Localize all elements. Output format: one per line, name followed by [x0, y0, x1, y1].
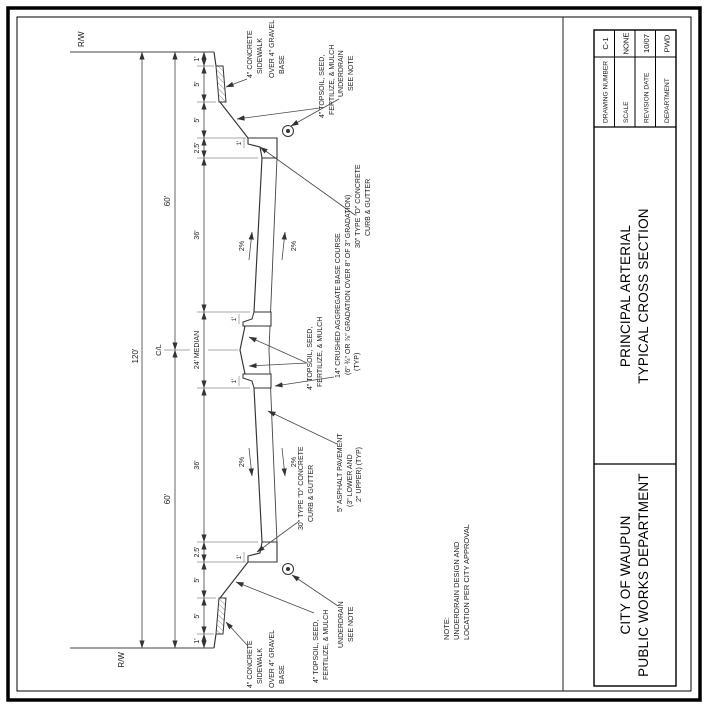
- curb-head-dim: 1': [231, 317, 238, 322]
- annotations: 4" CONCRETE SIDEWALK OVER 4" GRAVEL BASE…: [226, 20, 372, 688]
- sidewalk-note-right-2: SIDEWALK: [257, 38, 264, 74]
- pavement-surface-left: [254, 388, 262, 542]
- slope-text: 2%: [291, 457, 298, 467]
- leader: [236, 582, 314, 613]
- leader: [249, 363, 307, 366]
- dim-chain-4: 36': [194, 460, 201, 469]
- dim-chain-10: 1': [194, 56, 201, 61]
- leader: [237, 108, 320, 119]
- sidewalk-note-right-4: BASE: [279, 55, 286, 74]
- sidewalk-note-left-2: SIDEWALK: [257, 648, 264, 684]
- dim-chain-9: 5': [194, 81, 201, 86]
- underdrain-pipe-left-core: [286, 567, 290, 571]
- pavement-bottom: [269, 158, 277, 542]
- underdrain-note-right-2: SEE NOTE: [348, 55, 355, 91]
- note-line-3: LOCATION PER CITY APPROVAL: [462, 524, 471, 640]
- sidewalk-note-right-3: OVER 4" GRAVEL: [269, 20, 276, 78]
- slope-text: 2%: [291, 241, 298, 251]
- ground-left: [214, 634, 216, 648]
- dimension-lines: R/W R/W 120' 60' 60' C/L 1' 5' 5' 2.5' 3…: [70, 31, 258, 668]
- asphalt-note-3: 2" UPPER) (TYP): [356, 447, 363, 502]
- sidewalk-slab-right: [216, 66, 226, 102]
- title-block-box: [594, 30, 676, 686]
- dim-chain-3: 2.5': [194, 546, 201, 557]
- rw-label-right: R/W: [77, 31, 86, 47]
- dim-chain-7: 2.5': [194, 142, 201, 153]
- sidewalk-note-right-1: 4" CONCRETE: [247, 30, 254, 78]
- leader: [226, 622, 248, 646]
- curb-head-dim: 1': [236, 141, 243, 146]
- leader: [260, 147, 355, 215]
- asphalt-note-2: (3" LOWER AND: [347, 454, 354, 507]
- agency-name-line2: PUBLIC WORKS DEPARTMENT: [636, 473, 651, 677]
- rw-label-left: R/W: [117, 652, 126, 668]
- cross-section-drawing: CITY OF WAUPUN PUBLIC WORKS DEPARTMENT P…: [0, 0, 708, 708]
- aggregate-note-2: (6" ¾" OR ⅞" GRADATION OVER 8" OF 3" GRA…: [345, 195, 352, 375]
- note-line-1: NOTE:: [442, 617, 451, 640]
- leader: [268, 411, 337, 444]
- slope-labels: 2% 2% 2% 2%: [239, 232, 298, 476]
- slope-text: 2%: [239, 241, 246, 251]
- curb-note-left-2: CURB & GUTTER: [308, 465, 315, 522]
- median-curb-right: [243, 312, 271, 326]
- dim-chain-6: 36': [194, 230, 201, 239]
- topsoil-note-left-1: 4" TOPSOIL, SEED,: [313, 620, 320, 683]
- underdrain-note-left-1: UNDERDRAIN: [338, 601, 345, 648]
- scale-label: SCALE: [623, 101, 630, 123]
- curb-note-right-2: CURB & GUTTER: [365, 179, 372, 236]
- general-note: NOTE: UNDERDRAIN DESIGN AND LOCATION PER…: [442, 524, 471, 640]
- slope-arrow: [282, 448, 285, 476]
- drawing-sheet: CITY OF WAUPUN PUBLIC WORKS DEPARTMENT P…: [0, 0, 708, 708]
- scale-value: NONE: [622, 33, 631, 55]
- sheet-title-line1: PRINCIPAL ARTERIAL: [618, 225, 633, 367]
- median-surface: [240, 326, 245, 374]
- pavement-surface-right: [254, 158, 262, 312]
- underdrain-note-right-1: UNDERDRAIN: [338, 50, 345, 97]
- slope-arrow: [282, 232, 285, 260]
- asphalt-note-1: 5" ASPHALT PAVEMENT: [337, 433, 344, 512]
- drawing-number-label: DRAWING NUMBER: [603, 61, 610, 123]
- curb-head-dim: 1': [231, 379, 238, 384]
- ground-right: [214, 52, 216, 66]
- dim-chain-0: 1': [194, 638, 201, 643]
- sidewalk-slab-left: [216, 598, 226, 634]
- dim-chain-2: 5': [194, 577, 201, 582]
- dim-half-right-text: 60': [163, 195, 172, 206]
- title-block: CITY OF WAUPUN PUBLIC WORKS DEPARTMENT P…: [594, 30, 676, 686]
- slope-text: 2%: [239, 457, 246, 467]
- topsoil-note-left-2: FERTILIZE, & MULCH: [323, 610, 330, 680]
- slope-arrow: [249, 232, 252, 260]
- slope-arrow: [249, 448, 252, 476]
- dim-chain-8: 5': [194, 117, 201, 122]
- aggregate-note-1: 14" CRUSHED AGGREGATE BASE COURSE: [335, 233, 342, 378]
- curb-head-dim: 1': [236, 555, 243, 560]
- centerline-label: C/L: [154, 344, 163, 356]
- leader: [275, 377, 334, 386]
- note-line-2: UNDERDRAIN DESIGN AND: [452, 541, 461, 640]
- revision-date-label: REVISION DATE: [644, 72, 651, 123]
- curb-note-right-1: 30" TYPE "D" CONCRETE: [355, 164, 362, 248]
- leader: [292, 575, 338, 606]
- curb-note-left-1: 30" TYPE "D" CONCRETE: [298, 446, 305, 530]
- dim-chain-5: 24' MEDIAN: [194, 331, 201, 369]
- sidewalk-note-left-1: 4" CONCRETE: [247, 640, 254, 688]
- median-curb-left: [243, 374, 271, 388]
- curb-gutter-right: [248, 138, 277, 158]
- agency-name-line1: CITY OF WAUPUN: [618, 515, 633, 634]
- revision-date-value: 10/07: [642, 34, 651, 53]
- sidewalk-note-left-3: OVER 4" GRAVEL: [269, 630, 276, 688]
- dim-chain-1: 5': [194, 613, 201, 618]
- sidewalk-note-left-4: BASE: [279, 665, 286, 684]
- department-value: PWD: [663, 34, 672, 52]
- curb-gutter-left: [248, 542, 277, 562]
- terrace-left: [220, 562, 248, 598]
- underdrain-note-left-2: SEE NOTE: [348, 606, 355, 642]
- department-label: DEPARTMENT: [664, 78, 671, 123]
- underdrain-pipe-right-core: [286, 129, 290, 133]
- aggregate-note-3: (TYP): [354, 353, 361, 371]
- drawing-number-value: C-1: [601, 37, 610, 49]
- leader: [226, 79, 247, 87]
- dim-overall-text: 120': [131, 348, 140, 363]
- sheet-title-line2: TYPICAL CROSS SECTION: [636, 208, 651, 383]
- dim-half-left-text: 60': [163, 493, 172, 504]
- topsoil-note-median-2: FERTILIZE, & MULCH: [317, 317, 324, 387]
- leader: [249, 337, 307, 363]
- terrace-right: [220, 102, 248, 138]
